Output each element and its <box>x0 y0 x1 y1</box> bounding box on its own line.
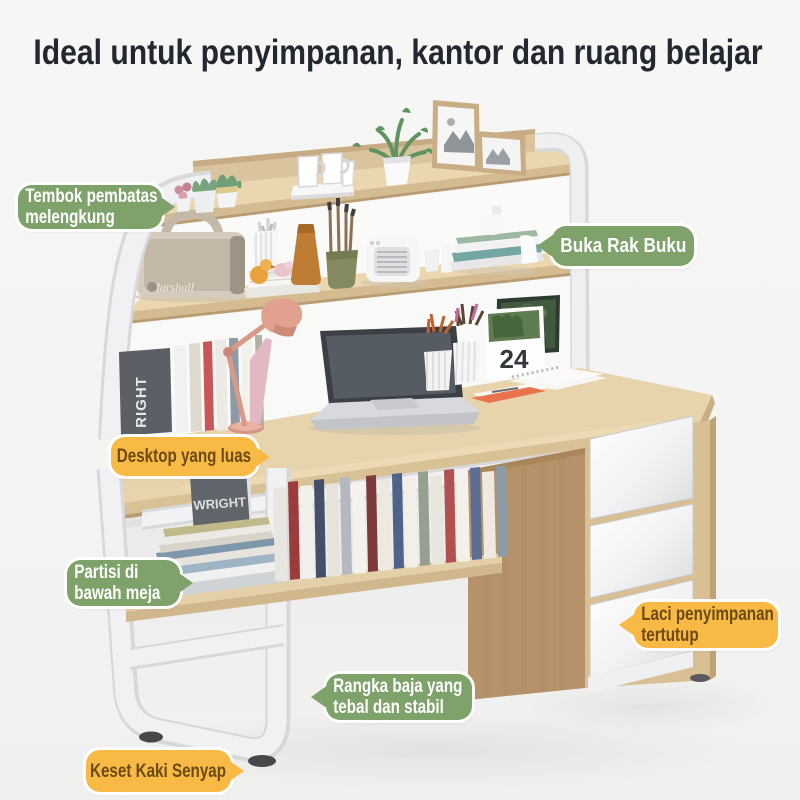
svg-text:RIGHT: RIGHT <box>133 376 150 428</box>
svg-text:24: 24 <box>500 344 529 374</box>
